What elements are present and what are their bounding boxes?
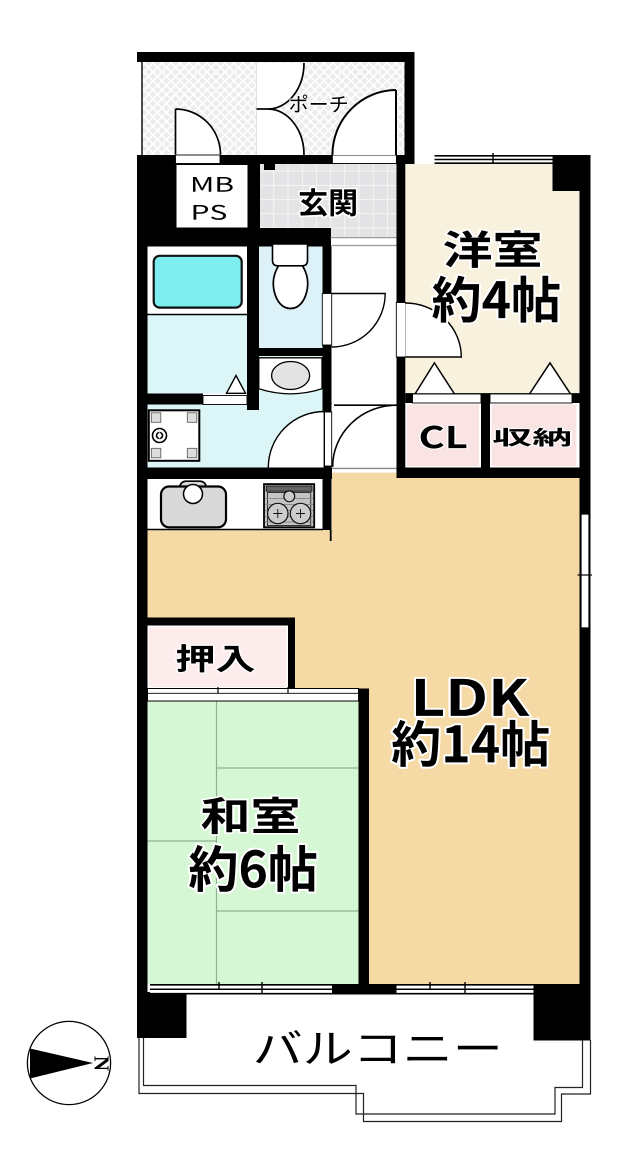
svg-text:N: N (90, 1056, 114, 1071)
